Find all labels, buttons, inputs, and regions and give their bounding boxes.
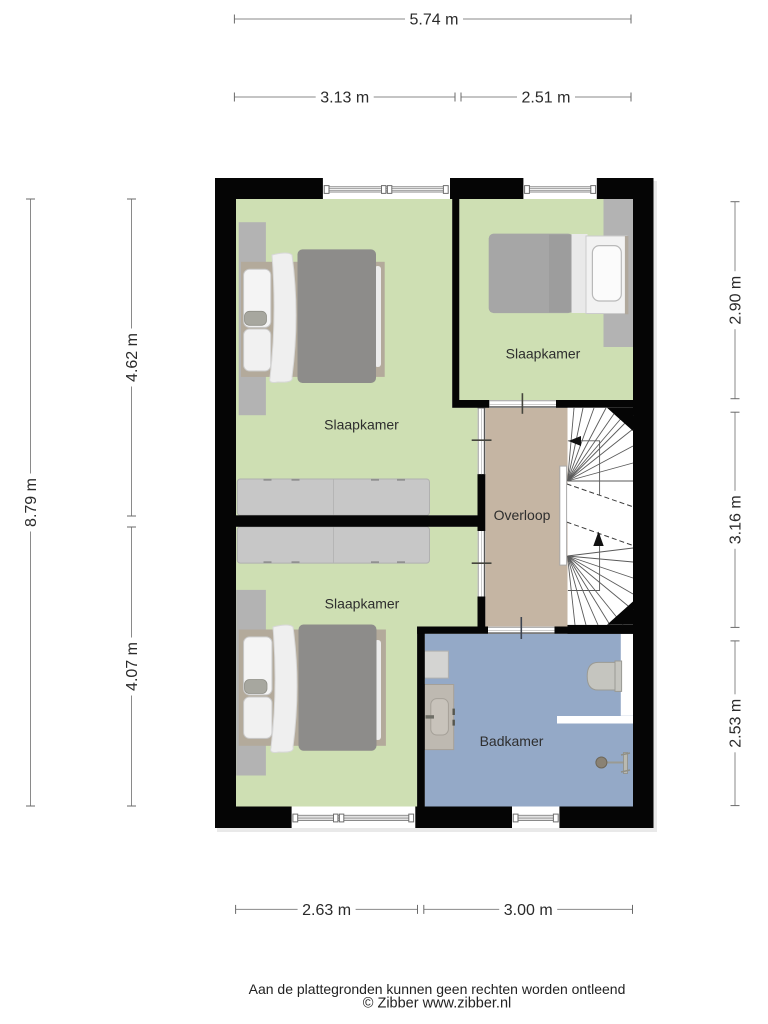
svg-text:2.53 m: 2.53 m <box>728 699 745 748</box>
svg-text:3.00 m: 3.00 m <box>504 902 553 919</box>
svg-text:2.63 m: 2.63 m <box>302 902 351 919</box>
svg-text:Slaapkamer: Slaapkamer <box>325 596 400 612</box>
svg-text:Overloop: Overloop <box>494 507 551 523</box>
svg-text:8.79 m: 8.79 m <box>23 478 40 527</box>
svg-text:4.07 m: 4.07 m <box>124 642 141 691</box>
svg-text:4.62 m: 4.62 m <box>124 333 141 382</box>
svg-text:Slaapkamer: Slaapkamer <box>506 346 581 362</box>
svg-text:5.74 m: 5.74 m <box>410 12 459 29</box>
svg-text:© Zibber www.zibber.nl: © Zibber www.zibber.nl <box>363 996 512 1012</box>
svg-text:3.16 m: 3.16 m <box>728 495 745 544</box>
svg-text:Slaapkamer: Slaapkamer <box>324 417 399 433</box>
svg-text:Badkamer: Badkamer <box>480 733 544 749</box>
svg-text:2.90 m: 2.90 m <box>728 276 745 325</box>
svg-text:3.13 m: 3.13 m <box>320 90 369 107</box>
svg-text:2.51 m: 2.51 m <box>522 90 571 107</box>
